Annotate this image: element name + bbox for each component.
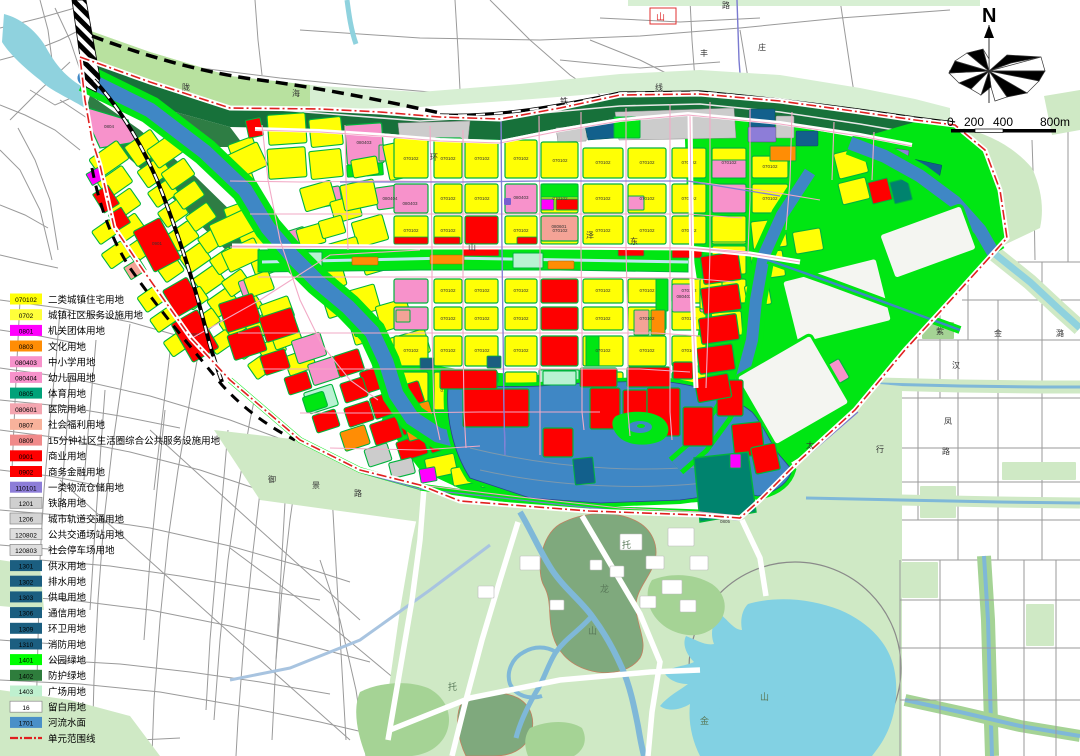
svg-text:070102: 070102: [513, 348, 529, 353]
svg-text:070102: 070102: [513, 228, 529, 233]
svg-text:山: 山: [656, 12, 665, 22]
svg-text:080403: 080403: [513, 195, 529, 200]
svg-text:080403: 080403: [356, 140, 372, 145]
svg-text:070102: 070102: [513, 156, 529, 161]
svg-text:080404: 080404: [15, 376, 37, 383]
svg-text:1301: 1301: [19, 564, 34, 571]
svg-text:070102: 070102: [440, 196, 456, 201]
svg-text:080403: 080403: [15, 360, 37, 367]
svg-text:15分钟社区生活圈综合公共服务设施用地: 15分钟社区生活圈综合公共服务设施用地: [48, 435, 221, 447]
svg-text:070102: 070102: [762, 164, 778, 169]
svg-text:070102: 070102: [595, 348, 611, 353]
svg-text:070102: 070102: [403, 348, 419, 353]
svg-text:御: 御: [268, 474, 276, 484]
svg-text:110101: 110101: [15, 485, 37, 492]
svg-text:0809: 0809: [19, 438, 34, 445]
svg-text:紫: 紫: [936, 327, 944, 336]
svg-text:单元范围线: 单元范围线: [48, 733, 96, 745]
svg-text:070102: 070102: [474, 288, 490, 293]
svg-text:太: 太: [806, 440, 814, 450]
svg-text:070102: 070102: [474, 348, 490, 353]
svg-text:托: 托: [448, 681, 457, 692]
svg-text:070102: 070102: [474, 196, 490, 201]
svg-text:山: 山: [760, 692, 769, 702]
svg-text:铁: 铁: [560, 96, 568, 106]
svg-text:泽: 泽: [586, 231, 594, 240]
svg-text:供水用地: 供水用地: [48, 560, 87, 572]
svg-text:070102: 070102: [595, 160, 611, 165]
svg-text:海: 海: [292, 88, 300, 98]
svg-text:公园绿地: 公园绿地: [48, 654, 87, 666]
svg-text:机关团体用地: 机关团体用地: [48, 325, 106, 337]
svg-text:医院用地: 医院用地: [48, 404, 87, 416]
svg-text:1309: 1309: [19, 626, 34, 633]
svg-text:商业用地: 商业用地: [48, 451, 87, 463]
svg-text:城镇社区服务设施用地: 城镇社区服务设施用地: [48, 310, 144, 322]
svg-text:0702: 0702: [19, 313, 34, 320]
svg-text:070102: 070102: [440, 348, 456, 353]
svg-text:消防用地: 消防用地: [48, 639, 87, 651]
svg-text:070102: 070102: [440, 228, 456, 233]
svg-text:丰: 丰: [700, 48, 708, 58]
svg-text:070102: 070102: [440, 156, 456, 161]
svg-text:1310: 1310: [19, 642, 34, 649]
svg-text:080601: 080601: [551, 224, 567, 229]
svg-text:070102: 070102: [552, 158, 568, 163]
svg-text:河流水面: 河流水面: [48, 717, 86, 729]
svg-text:070102: 070102: [595, 288, 611, 293]
svg-text:山: 山: [588, 626, 597, 636]
svg-text:070102: 070102: [15, 297, 37, 304]
svg-text:070102: 070102: [440, 288, 456, 293]
svg-text:400: 400: [993, 115, 1013, 129]
svg-text:070102: 070102: [513, 288, 529, 293]
svg-text:环: 环: [430, 153, 438, 162]
svg-text:中小学用地: 中小学用地: [48, 357, 96, 369]
svg-text:1401: 1401: [19, 658, 34, 665]
svg-text:行: 行: [876, 444, 884, 454]
svg-text:金: 金: [700, 715, 709, 726]
svg-text:文化用地: 文化用地: [48, 341, 87, 353]
svg-text:070102: 070102: [403, 156, 419, 161]
svg-text:1701: 1701: [19, 721, 34, 728]
svg-text:线: 线: [655, 82, 663, 92]
svg-text:070102: 070102: [639, 348, 655, 353]
svg-text:070102: 070102: [474, 316, 490, 321]
svg-text:社会福利用地: 社会福利用地: [48, 419, 106, 431]
svg-text:1206: 1206: [19, 517, 34, 524]
svg-text:铁路用地: 铁路用地: [48, 498, 87, 510]
svg-text:潞: 潞: [1056, 328, 1064, 338]
svg-text:120803: 120803: [15, 548, 37, 555]
svg-text:环卫用地: 环卫用地: [48, 623, 87, 635]
svg-text:200: 200: [964, 115, 984, 129]
svg-text:N: N: [982, 5, 996, 27]
svg-text:070102: 070102: [639, 160, 655, 165]
svg-text:防护绿地: 防护绿地: [48, 670, 87, 682]
svg-text:1303: 1303: [19, 595, 34, 602]
svg-text:070102: 070102: [639, 228, 655, 233]
svg-text:一类物流仓储用地: 一类物流仓储用地: [48, 482, 125, 494]
svg-text:080601: 080601: [15, 407, 37, 414]
svg-text:1201: 1201: [19, 501, 34, 508]
svg-text:080403: 080403: [402, 201, 418, 206]
svg-text:0901: 0901: [152, 241, 163, 246]
svg-text:体育用地: 体育用地: [48, 388, 87, 400]
svg-text:景: 景: [312, 481, 320, 490]
svg-text:0: 0: [947, 115, 954, 129]
svg-text:070102: 070102: [513, 316, 529, 321]
svg-text:0807: 0807: [19, 423, 34, 430]
svg-text:070102: 070102: [552, 196, 568, 201]
svg-text:幼儿园用地: 幼儿园用地: [48, 372, 96, 384]
svg-text:070102: 070102: [440, 316, 456, 321]
svg-text:0801: 0801: [19, 329, 34, 336]
svg-text:城市轨道交通用地: 城市轨道交通用地: [48, 513, 125, 525]
svg-text:070102: 070102: [721, 160, 737, 165]
svg-text:东: 东: [630, 236, 638, 246]
svg-text:080404: 080404: [382, 196, 398, 201]
svg-text:留白用地: 留白用地: [48, 702, 87, 714]
svg-text:070102: 070102: [595, 316, 611, 321]
svg-text:070102: 070102: [639, 196, 655, 201]
svg-text:路: 路: [722, 0, 730, 10]
svg-text:供电用地: 供电用地: [48, 592, 87, 604]
svg-text:070102: 070102: [403, 228, 419, 233]
svg-text:路: 路: [942, 446, 950, 456]
svg-text:商务金融用地: 商务金融用地: [48, 466, 106, 478]
svg-text:公共交通场站用地: 公共交通场站用地: [48, 529, 125, 541]
svg-text:0804: 0804: [104, 124, 115, 129]
svg-text:0805: 0805: [19, 391, 34, 398]
svg-text:广场用地: 广场用地: [48, 686, 87, 698]
svg-text:070102: 070102: [474, 156, 490, 161]
svg-text:社会停车场用地: 社会停车场用地: [48, 545, 115, 557]
svg-text:凤: 凤: [944, 417, 952, 426]
svg-text:1302: 1302: [19, 579, 34, 586]
svg-text:陇: 陇: [182, 82, 190, 92]
svg-text:070102: 070102: [595, 196, 611, 201]
svg-text:1403: 1403: [19, 689, 34, 696]
svg-text:汉: 汉: [952, 361, 960, 370]
svg-text:通信用地: 通信用地: [48, 607, 87, 619]
svg-text:070102: 070102: [639, 288, 655, 293]
svg-text:120802: 120802: [15, 532, 37, 539]
svg-text:托: 托: [622, 539, 631, 550]
svg-text:路: 路: [354, 488, 362, 498]
svg-text:080403: 080403: [676, 294, 692, 299]
svg-text:1306: 1306: [19, 611, 34, 618]
svg-text:0902: 0902: [19, 470, 34, 477]
svg-text:0901: 0901: [19, 454, 34, 461]
svg-text:金: 金: [994, 328, 1002, 338]
svg-text:800m: 800m: [1040, 115, 1070, 129]
svg-text:龙: 龙: [600, 583, 609, 594]
svg-text:1402: 1402: [19, 673, 34, 680]
svg-text:二类城镇住宅用地: 二类城镇住宅用地: [48, 294, 125, 306]
svg-text:庄: 庄: [758, 42, 766, 52]
svg-text:070102: 070102: [639, 316, 655, 321]
svg-text:排水用地: 排水用地: [48, 576, 87, 588]
svg-text:070102: 070102: [762, 196, 778, 201]
svg-text:0803: 0803: [19, 344, 34, 351]
svg-text:070102: 070102: [595, 228, 611, 233]
svg-text:山: 山: [468, 242, 476, 252]
svg-text:16: 16: [22, 705, 30, 712]
